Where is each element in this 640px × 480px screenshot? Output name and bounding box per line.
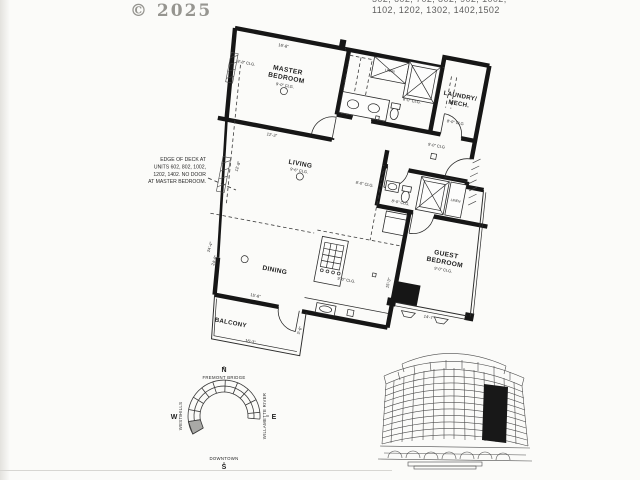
unit-plan: MASTER BEDROOM 9'-0" CLG. LIVING 9'-6" C… bbox=[177, 18, 521, 387]
sink bbox=[385, 181, 400, 193]
balcony-label: BALCONY bbox=[214, 317, 247, 330]
compass-ticks bbox=[179, 366, 269, 465]
dim-living-side: 12'-8" bbox=[234, 160, 242, 172]
toilet-tank bbox=[402, 185, 412, 192]
hall-ceiling-label: 8'-0" CLG. bbox=[355, 180, 374, 188]
toilet-tank bbox=[391, 103, 401, 110]
refrigerator bbox=[382, 211, 407, 236]
master-bath-fixtures bbox=[339, 50, 441, 129]
dining-label: DINING bbox=[262, 265, 288, 277]
dim-master-top: 16'-8" bbox=[278, 42, 290, 49]
compass-w: W bbox=[171, 414, 178, 421]
entry-ceiling-label: 9'-0" CLG bbox=[428, 141, 446, 149]
scanned-floor-plan-page: © 2025 502, 602, 702, 802, 902, 1002, 11… bbox=[0, 0, 640, 480]
window-glyph bbox=[433, 317, 448, 325]
dim-west-upper: 24'-4" bbox=[206, 241, 214, 253]
dim-kitchen-side: 15'-3" bbox=[384, 277, 392, 289]
highlighted-unit-cell bbox=[188, 420, 203, 434]
site-locator: N FREMONT BRIDGE S DOWNTOWN W WEST HILLS… bbox=[171, 366, 277, 471]
building-illustration bbox=[378, 353, 532, 469]
highlighted-unit-stack bbox=[482, 384, 508, 443]
dim-master-bottom: 12'-3" bbox=[266, 131, 278, 138]
dim-dining-bottom: 15'-6" bbox=[250, 292, 262, 299]
deck-note-line3: 1202, 1402. NO DOOR bbox=[153, 172, 206, 178]
compass-e: E bbox=[272, 414, 277, 421]
downtown-label: DOWNTOWN bbox=[209, 456, 238, 461]
dim-balcony-side: 5'-6" bbox=[296, 325, 304, 335]
building-footprint-arc bbox=[188, 380, 260, 434]
window-glyph bbox=[400, 311, 415, 319]
laundry-ceiling-label: 8'-0" CLG bbox=[446, 118, 464, 126]
fremont-bridge-label: FREMONT BRIDGE bbox=[202, 375, 245, 380]
floor-plan-drawing: MASTER BEDROOM 9'-0" CLG. LIVING 9'-6" C… bbox=[0, 0, 640, 480]
compass-s: S bbox=[222, 464, 227, 471]
dim-guest-bottom: 14'-7" bbox=[423, 314, 435, 321]
appliance bbox=[347, 309, 354, 316]
deck-note-line2: UNITS 602, 802, 1002, bbox=[154, 164, 206, 170]
deck-note-line4: AT MASTER BEDROOM. bbox=[148, 179, 206, 185]
west-ceiling-label: 8'-8" CLG. bbox=[237, 59, 256, 67]
building-base bbox=[378, 446, 532, 469]
deck-note-line1: EDGE OF DECK AT bbox=[160, 157, 206, 163]
dim-balcony-bottom: 16'-3" bbox=[245, 338, 257, 345]
